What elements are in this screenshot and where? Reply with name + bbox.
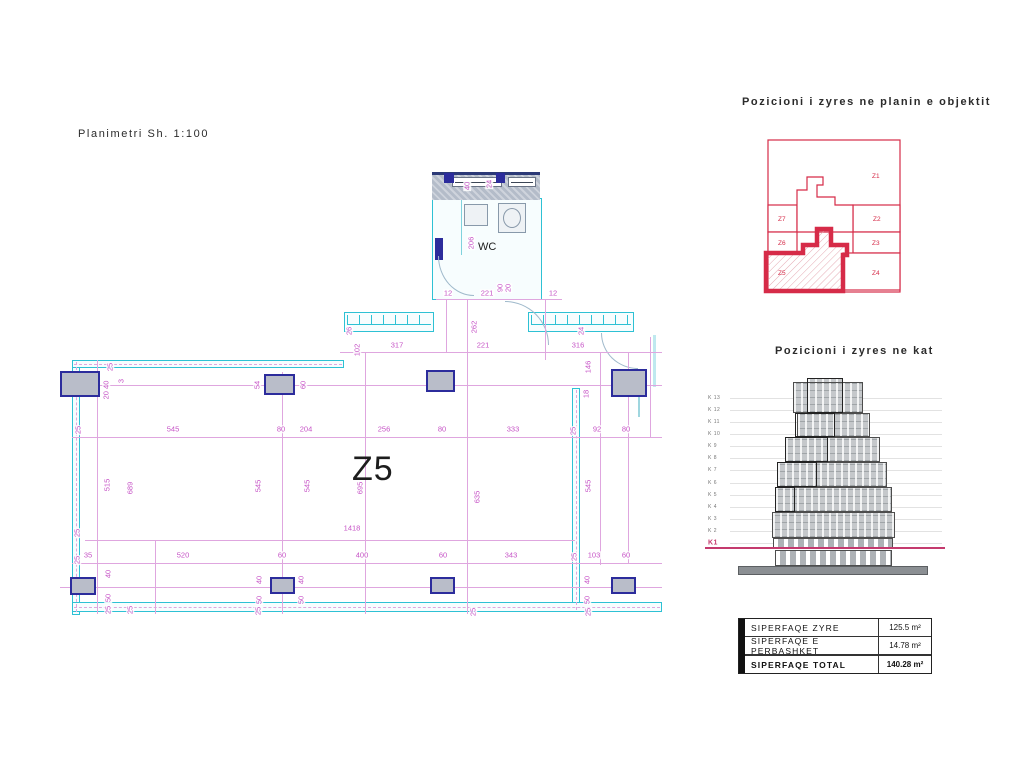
dimension-line	[155, 540, 156, 614]
dim-label: 25	[469, 607, 477, 617]
dim-label: 25	[570, 552, 578, 562]
table-edge-bar	[739, 619, 745, 673]
dim-label: 333	[506, 425, 521, 433]
zone-outline	[775, 487, 795, 512]
dimension-line	[446, 299, 447, 352]
zone-outline	[777, 462, 817, 487]
building-elevation: K 13K 12K 11K 10K 9K 8K 7K 6K 5K 4K 3K 2…	[700, 335, 960, 580]
dimension-line	[600, 352, 601, 565]
sink-bowl-icon	[503, 208, 521, 228]
dim-label: 25	[569, 426, 577, 436]
structural-column	[264, 374, 295, 395]
dim-label: 26	[345, 326, 353, 336]
summary-row: SIPERFAQE TOTAL140.28 m²	[739, 655, 931, 673]
dim-label: 12	[548, 289, 558, 297]
summary-row: SIPERFAQE E PERBASHKET14.78 m²	[739, 637, 931, 655]
window-mullions	[347, 315, 431, 325]
wc-room-label: WC	[478, 241, 496, 253]
zone-label: Z2	[873, 216, 881, 223]
dimension-line	[650, 337, 651, 437]
dim-label: 400	[355, 551, 370, 559]
dim-label: 60	[277, 551, 287, 559]
dim-label: 3	[117, 378, 125, 384]
dim-label: 515	[103, 478, 111, 493]
door-swing-arc	[505, 301, 549, 345]
stair-arrow-slot	[452, 177, 502, 187]
wc-partition	[461, 200, 462, 255]
floor-level-label: K 13	[708, 395, 720, 401]
floor-level-label: K 11	[708, 419, 720, 425]
zone-label: Z1	[872, 173, 880, 180]
dim-label: 20 40	[102, 380, 110, 401]
dim-label: 60	[621, 551, 631, 559]
dim-label: 25	[254, 606, 262, 616]
floor-level-label: K 10	[708, 431, 720, 437]
dim-label: 25	[104, 605, 112, 615]
dim-label: 25	[73, 555, 81, 565]
dim-label: 12	[443, 289, 453, 297]
dim-label: 40	[104, 569, 112, 579]
wall-centerline	[74, 607, 660, 608]
door-swing-arc	[601, 333, 638, 369]
dimension-line	[85, 540, 575, 541]
structural-column	[426, 370, 455, 392]
zone-label: Z4	[872, 270, 880, 277]
zone-outline	[807, 378, 843, 413]
dim-label: 54	[253, 380, 261, 390]
floor-level-label: K 8	[708, 455, 717, 461]
wall-window-strip-1	[344, 312, 434, 332]
dim-label: 20	[504, 283, 512, 293]
dim-label: 35	[83, 551, 93, 559]
dimension-line	[340, 352, 662, 353]
floor-level-label: K 5	[708, 492, 717, 498]
dimension-line	[467, 299, 468, 614]
structural-column	[611, 577, 636, 594]
summary-row-label: SIPERFAQE E PERBASHKET	[739, 636, 878, 656]
dim-label: 50	[255, 595, 263, 605]
stair-arrow-slot	[508, 177, 536, 187]
dim-label: 146	[584, 360, 592, 375]
k1-level-marker	[705, 547, 945, 549]
dim-label: 103	[587, 551, 602, 559]
dim-label: 80	[437, 425, 447, 433]
dim-label: 80	[621, 425, 631, 433]
structural-column	[60, 371, 100, 397]
room-label: Z5	[352, 450, 394, 489]
ground-bar	[738, 566, 928, 575]
dim-label: 50	[104, 593, 112, 603]
dim-label: 24	[577, 326, 585, 336]
structural-column	[270, 577, 295, 594]
structural-column	[611, 369, 647, 397]
dim-label: 206	[467, 236, 475, 251]
wall-stub	[653, 335, 656, 387]
dim-label: 262	[470, 320, 478, 335]
dim-label: 40	[297, 575, 305, 585]
dim-label: 25	[73, 528, 81, 538]
dim-label: 25	[106, 362, 114, 372]
floor-level-label: K 12	[708, 407, 720, 413]
window-mullions	[531, 315, 631, 325]
dim-label: 635	[473, 490, 481, 505]
dim-label: 25	[74, 425, 82, 435]
dim-label: 92	[592, 425, 602, 433]
zone-key-plan: Z1 Z7 Z6 Z2 Z3 Z5 Z4	[762, 130, 912, 300]
dim-label: 256	[377, 425, 392, 433]
floor-level-label: K 3	[708, 516, 717, 522]
dim-label: 50	[583, 595, 591, 605]
summary-row: SIPERFAQE ZYRE125.5 m²	[739, 619, 931, 637]
dim-label: 317	[390, 341, 405, 349]
dimension-line	[97, 360, 98, 614]
dim-label: 40	[255, 575, 263, 585]
dimension-line	[72, 437, 662, 438]
floor-level-label: K 9	[708, 443, 717, 449]
dim-label: 221	[476, 341, 491, 349]
wc-cabinet	[464, 204, 488, 226]
summary-row-value: 140.28 m²	[878, 656, 931, 673]
summary-row-value: 14.78 m²	[878, 637, 931, 654]
tower-tier	[772, 512, 895, 538]
dimension-line	[545, 299, 546, 360]
drawing-sheet: Planimetri Sh. 1:100 31722	[0, 0, 1024, 768]
dim-label: 545	[303, 479, 311, 494]
dim-label: 221	[480, 289, 495, 297]
dim-label: 545	[166, 425, 181, 433]
plan-title: Planimetri Sh. 1:100	[78, 128, 209, 140]
dim-label: 316	[571, 341, 586, 349]
zone-label: Z5	[778, 270, 786, 277]
dimension-line	[72, 563, 662, 564]
dim-label: 520	[176, 551, 191, 559]
dim-label: 204	[299, 425, 314, 433]
floor-level-label: K 4	[708, 504, 717, 510]
floor-level-label: K1	[708, 539, 718, 546]
dim-label: 24	[485, 179, 493, 189]
dim-label: 60	[438, 551, 448, 559]
zone-outline	[785, 437, 828, 462]
wc-sink	[498, 203, 526, 233]
area-summary-table: SIPERFAQE ZYRE125.5 m²SIPERFAQE E PERBAS…	[738, 618, 932, 674]
dim-label: 18	[582, 389, 590, 399]
wall-centerline	[76, 362, 77, 612]
summary-row-label: SIPERFAQE TOTAL	[739, 660, 878, 670]
floor-level-label: K 7	[708, 467, 717, 473]
structural-column	[430, 577, 455, 594]
tower-ground-floor	[775, 550, 892, 566]
dim-label: 343	[504, 551, 519, 559]
dim-label: 689	[126, 481, 134, 496]
zone-outline	[795, 413, 835, 437]
dim-label: 40	[463, 181, 471, 191]
dim-label: 80	[276, 425, 286, 433]
dim-label: 545	[584, 479, 592, 494]
zone-label: Z7	[778, 216, 786, 223]
dimension-line	[436, 299, 562, 300]
dim-label: 40	[583, 575, 591, 585]
dim-label: 50	[297, 595, 305, 605]
wall-block	[444, 173, 454, 183]
summary-row-value: 125.5 m²	[878, 619, 931, 636]
zone-label: Z6	[778, 240, 786, 247]
structural-column	[70, 577, 96, 595]
wall-centerline	[576, 390, 577, 610]
dimension-line	[60, 587, 662, 588]
dim-label: 1418	[343, 524, 362, 532]
floor-level-label: K 6	[708, 480, 717, 486]
dim-label: 545	[254, 479, 262, 494]
dim-label: 60	[299, 380, 307, 390]
summary-row-label: SIPERFAQE ZYRE	[739, 623, 878, 633]
floor-level-label: K 2	[708, 528, 717, 534]
zone-label: Z3	[872, 240, 880, 247]
wall-block	[496, 173, 505, 183]
summary-table-body: SIPERFAQE ZYRE125.5 m²SIPERFAQE E PERBAS…	[739, 619, 931, 673]
dimension-line	[60, 385, 662, 386]
zone-map-title: Pozicioni i zyres ne planin e objektit	[742, 96, 991, 108]
dim-label: 25	[126, 605, 134, 615]
dim-label: 102	[353, 343, 361, 358]
dim-label: 25	[584, 607, 592, 617]
